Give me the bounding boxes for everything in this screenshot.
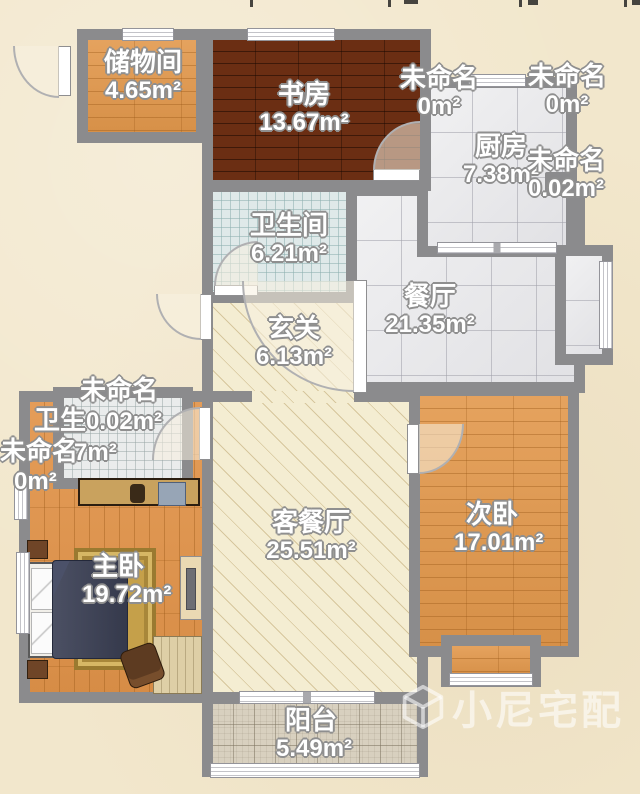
sliding-door-kitchen — [437, 242, 557, 254]
hanging-clothes-icon — [158, 482, 186, 506]
nightstand — [27, 660, 48, 679]
entry-living-opening — [252, 391, 354, 403]
wardrobe — [78, 478, 200, 506]
watermark-logo-icon — [400, 682, 446, 732]
label-second: 次卧 17.01m² — [454, 500, 530, 557]
door-master — [199, 407, 211, 460]
door-arc-main-entry-icon — [156, 294, 201, 340]
door-arc-storage-icon — [13, 46, 59, 98]
label-storage: 储物间 4.65m² — [90, 48, 196, 105]
label-living: 客餐厅 25.51m² — [260, 508, 362, 565]
label-balcony: 阳台 5.49m² — [276, 706, 346, 763]
dimension-tick — [624, 0, 627, 7]
dimension-tick — [388, 0, 391, 7]
window-balcony-bottom — [210, 763, 420, 778]
sliding-door-balcony — [239, 691, 375, 704]
window-dining-bay — [599, 261, 613, 349]
label-study: 书房 13.67m² — [248, 80, 360, 137]
window-master-left — [16, 552, 30, 634]
label-unnamed-top-right: 未命名 0m² — [522, 62, 612, 119]
door-main-entry — [200, 294, 212, 340]
window-study-top — [247, 28, 335, 41]
dimension-tick — [528, 0, 538, 5]
dimension-tick — [632, 0, 640, 5]
label-bathroom-master-name: 卫生 — [34, 406, 86, 435]
label-unnamed-top-left: 未命名 0m² — [394, 64, 484, 121]
label-unnamed-left2-name: 未命名 — [0, 437, 78, 466]
label-unnamed-left2-area: 0m² — [14, 468, 57, 496]
dimension-tick — [250, 0, 253, 7]
label-bathroom-main: 卫生间 6.21m² — [236, 211, 342, 268]
door-study — [373, 169, 420, 181]
label-unnamed-left-area: 0.02m² — [86, 408, 162, 436]
watermark-text: 小尼宅配 — [452, 678, 624, 736]
label-dining: 餐厅 21.35m² — [382, 282, 478, 339]
label-unnamed-kitchen: 未命名 0.02m² — [514, 146, 618, 203]
door-entry-hall — [353, 280, 367, 393]
nightstand — [27, 540, 48, 559]
tv-icon — [186, 568, 196, 610]
floor-plan: 储物间 4.65m² 书房 13.67m² 未命名 0m² 未命名 0m² 厨房… — [0, 0, 640, 794]
label-entry: 玄关 6.13m² — [256, 314, 332, 371]
window-storage-top — [122, 28, 174, 41]
room-floor-dining-bay-window — [566, 256, 602, 354]
watermark: 小尼宅配 — [400, 678, 624, 736]
dimension-tick — [404, 0, 418, 4]
label-bathroom-master-area: 7m² — [74, 439, 117, 467]
room-floor-second-bay-window — [452, 646, 530, 676]
door-second — [407, 424, 419, 474]
label-unnamed-left-name: 未命名 — [80, 376, 158, 405]
wardrobe-item-icon — [130, 484, 145, 503]
tv-cabinet — [180, 556, 202, 620]
dimension-tick — [519, 0, 522, 7]
label-master: 主卧 19.72m² — [82, 552, 154, 609]
door-storage — [58, 46, 71, 96]
